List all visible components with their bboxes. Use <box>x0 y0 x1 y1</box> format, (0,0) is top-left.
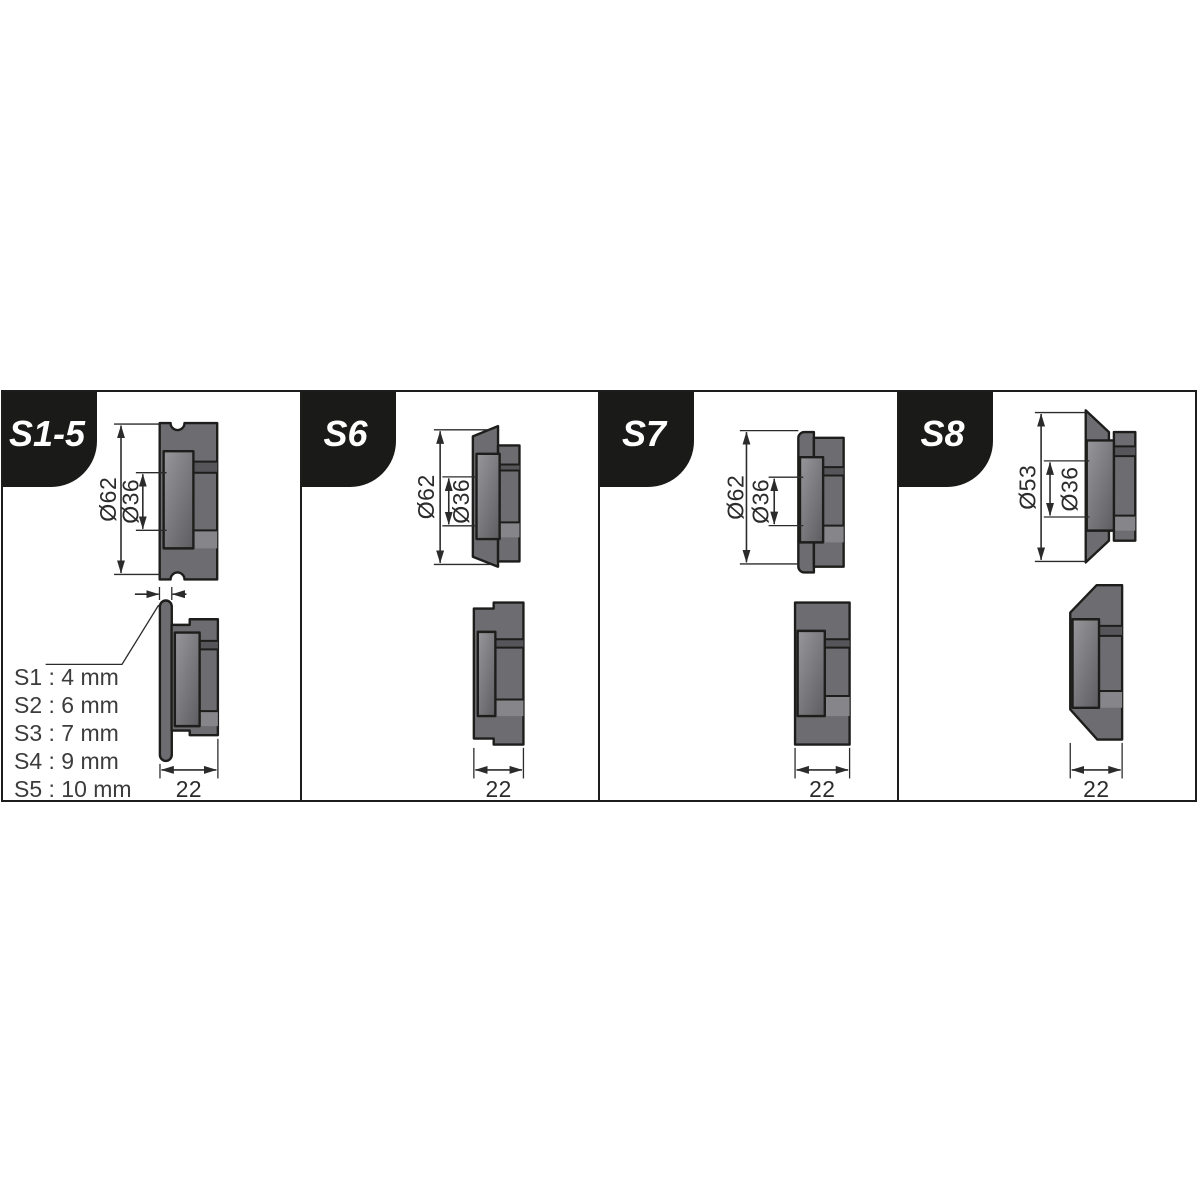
s8-dim-width: 22 <box>1070 743 1122 800</box>
s6-bottom-roller <box>473 603 523 745</box>
inner-diameter-label: Ø36 <box>117 479 143 524</box>
screenshot-root: Ø62 Ø36 <box>0 0 1200 1200</box>
inner-diameter-label: Ø36 <box>448 479 474 524</box>
gap-option-s5: S5 : 10 mm <box>14 775 132 803</box>
s7-dim-inner: Ø36 <box>747 477 803 525</box>
s8-bottom-roller <box>1070 585 1122 739</box>
diagram-band: Ø62 Ø36 <box>1 390 1197 802</box>
s6-dim-width: 22 <box>473 748 523 800</box>
s7-top-roller <box>798 432 843 572</box>
tab-s7: S7 <box>600 392 694 487</box>
inner-diameter-label: Ø36 <box>747 479 773 524</box>
s7-bottom-roller <box>795 603 850 745</box>
s8-top-roller <box>1085 410 1135 562</box>
gap-option-s2: S2 : 6 mm <box>14 691 132 719</box>
outer-diameter-label: Ø62 <box>722 475 748 520</box>
tab-s1-5: S1-5 <box>3 392 97 487</box>
gap-size-legend: S1 : 4 mm S2 : 6 mm S3 : 7 mm S4 : 9 mm … <box>14 663 132 803</box>
tab-s8: S8 <box>899 392 993 487</box>
outer-diameter-label: Ø53 <box>1014 465 1040 510</box>
gap-option-s4: S4 : 9 mm <box>14 747 132 775</box>
tab-s6-label: S6 <box>323 413 367 455</box>
s6-dim-inner: Ø36 <box>442 477 476 526</box>
panel-s1-5: Ø62 Ø36 <box>3 392 302 800</box>
width-label: 22 <box>485 776 511 800</box>
panel-s6: Ø62 Ø36 <box>302 392 601 800</box>
tab-s6: S6 <box>302 392 396 487</box>
tab-s8-label: S8 <box>920 413 964 455</box>
inner-diameter-label: Ø36 <box>1056 466 1082 511</box>
s7-dim-width: 22 <box>795 748 850 800</box>
tab-s1-5-label: S1-5 <box>9 413 85 455</box>
width-label: 22 <box>1083 776 1109 800</box>
panel-s8: Ø53 Ø36 <box>899 392 1196 800</box>
s1-5-bottom-roller <box>160 601 218 761</box>
s8-dim-inner: Ø36 <box>1043 461 1089 517</box>
panel-s7: Ø62 Ø36 <box>600 392 899 800</box>
s1-5-top-roller <box>160 423 218 579</box>
s6-top-roller <box>472 426 519 567</box>
gap-option-s3: S3 : 7 mm <box>14 719 132 747</box>
gap-leader-line <box>46 605 159 664</box>
width-label: 22 <box>809 776 835 800</box>
tab-s7-label: S7 <box>622 413 666 455</box>
gap-option-s1: S1 : 4 mm <box>14 663 132 691</box>
width-label: 22 <box>176 776 202 800</box>
outer-diameter-label: Ø62 <box>413 474 439 519</box>
